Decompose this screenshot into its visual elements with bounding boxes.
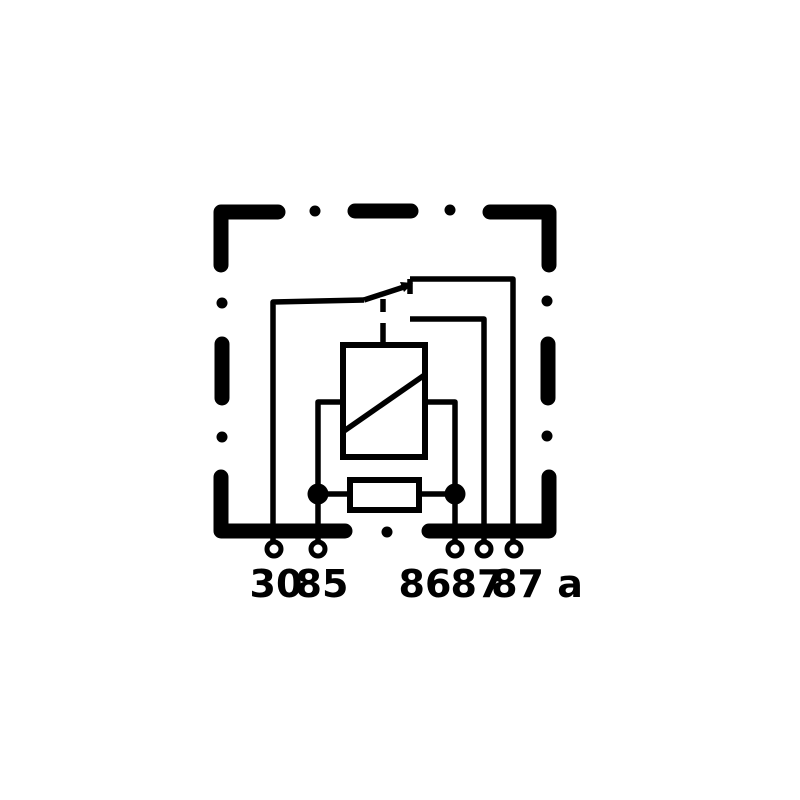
junction-dot-left [308,484,329,505]
terminal-pin-87a [507,542,521,556]
outline-top-dot-1 [310,206,321,217]
outline-top-left-corner [221,212,278,265]
terminal-label-85: 85 [296,562,349,606]
outline-bottom-left-corner [221,477,345,531]
outline-top-dot-2 [445,205,456,216]
terminal-pin-87 [477,542,491,556]
outline-bottom-right-corner [429,477,549,531]
terminal-pins [267,542,521,556]
terminal-pin-85 [311,542,325,556]
relay-schematic-canvas: 30 85 86 87 87 a [0,0,800,800]
junction-dot-right [445,484,466,505]
terminal-pin-86 [448,542,462,556]
outline-left-dot-2 [217,432,228,443]
terminal-labels: 30 85 86 87 87 a [250,562,583,606]
terminal-pin-30 [267,542,281,556]
terminal-label-87a: 87 a [491,562,583,606]
terminal-label-30: 30 [250,562,303,606]
outline-top-right-corner [490,212,549,265]
parallel-resistor-symbol [350,480,419,510]
switch-armature [364,286,407,300]
terminal-label-86: 86 [399,562,452,606]
outline-right-dot-1 [542,296,553,307]
terminal-86-wire [428,402,455,541]
relay-wiring-diagram: 30 85 86 87 87 a [0,0,800,800]
terminal-85-wire [318,402,340,541]
outline-bottom-dot [382,527,393,538]
outline-left-dot-1 [217,298,228,309]
outline-right-dot-2 [542,431,553,442]
